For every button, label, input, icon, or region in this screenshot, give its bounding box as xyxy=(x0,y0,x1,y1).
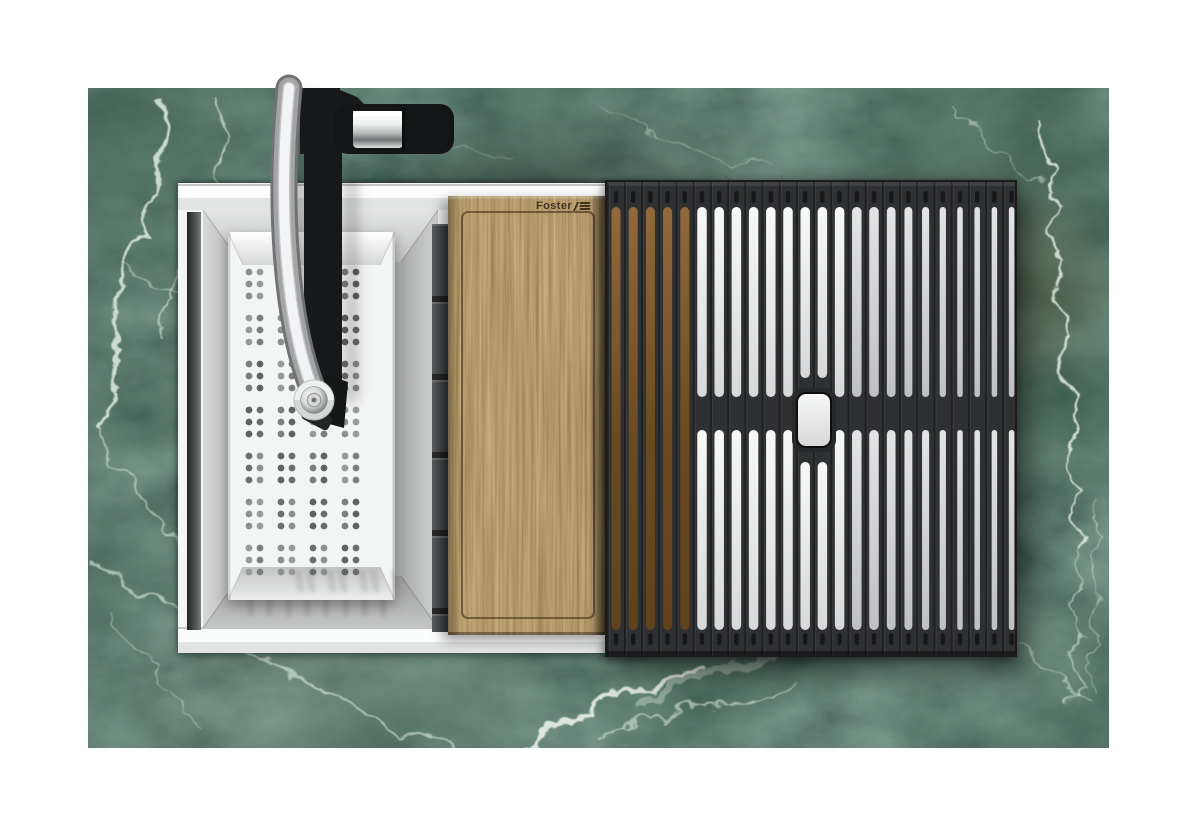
grid-mat-pattern xyxy=(605,180,1017,657)
brand-logo: Foster xyxy=(536,199,590,213)
colander-holes-pattern xyxy=(228,232,395,600)
mat-handle-cutout xyxy=(797,393,831,447)
accessory-ledge xyxy=(432,224,449,632)
product-photo: Foster xyxy=(0,0,1200,840)
wood-texture xyxy=(448,196,608,635)
brand-logo-text: Foster xyxy=(536,200,572,212)
frame-left-groove xyxy=(187,212,201,630)
rolling-grid-mat xyxy=(605,180,1017,657)
frame-bottom-shade xyxy=(178,642,648,653)
colander-insert xyxy=(228,232,395,600)
mat-cast-shadow xyxy=(588,196,605,635)
cutting-board: Foster xyxy=(448,196,608,635)
